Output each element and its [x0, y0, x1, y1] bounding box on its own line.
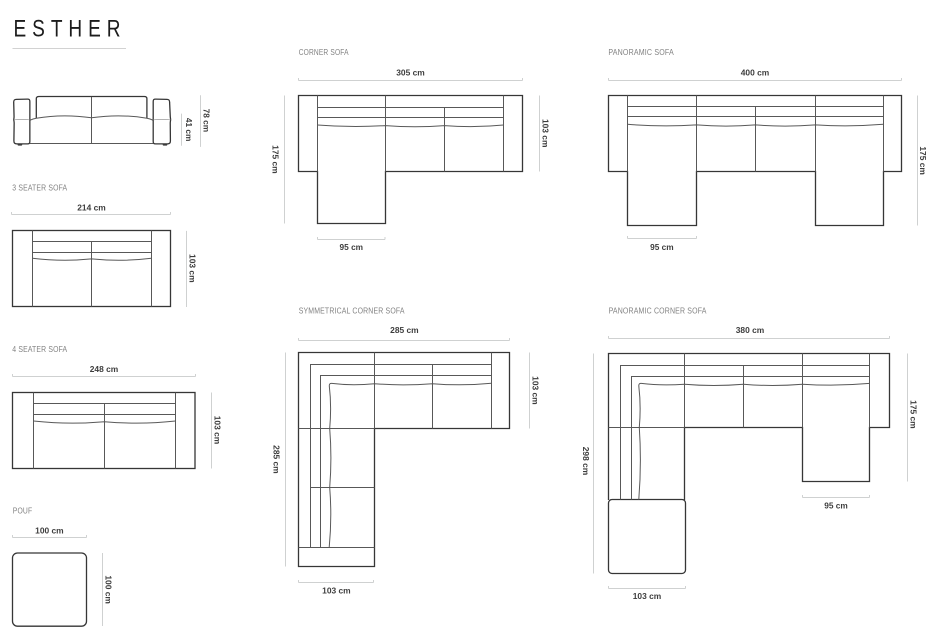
svg-text:78 cm: 78 cm	[201, 109, 211, 133]
svg-text:95 cm: 95 cm	[340, 242, 364, 252]
svg-text:PANORAMIC SOFA: PANORAMIC SOFA	[608, 47, 674, 57]
svg-text:285 cm: 285 cm	[390, 325, 419, 335]
svg-text:175 cm: 175 cm	[271, 145, 281, 174]
svg-text:100 cm: 100 cm	[35, 525, 64, 535]
svg-text:103 cm: 103 cm	[322, 586, 351, 596]
svg-text:103 cm: 103 cm	[531, 376, 541, 405]
svg-text:4 SEATER SOFA: 4 SEATER SOFA	[12, 344, 67, 354]
svg-text:CORNER SOFA: CORNER SOFA	[299, 47, 349, 57]
svg-text:ESTHER: ESTHER	[14, 16, 127, 43]
svg-text:103 cm: 103 cm	[540, 119, 550, 148]
svg-text:285 cm: 285 cm	[271, 445, 281, 474]
svg-text:SYMMETRICAL CORNER SOFA: SYMMETRICAL CORNER SOFA	[299, 306, 405, 316]
svg-text:298 cm: 298 cm	[581, 447, 591, 476]
svg-text:41 cm: 41 cm	[184, 118, 194, 142]
svg-text:175 cm: 175 cm	[909, 400, 919, 429]
svg-text:95 cm: 95 cm	[824, 500, 848, 510]
svg-text:175 cm: 175 cm	[918, 146, 928, 175]
svg-text:400 cm: 400 cm	[741, 68, 770, 78]
svg-text:95 cm: 95 cm	[650, 242, 674, 252]
svg-text:214 cm: 214 cm	[77, 202, 106, 212]
svg-text:248 cm: 248 cm	[90, 364, 119, 374]
svg-text:PANORAMIC CORNER SOFA: PANORAMIC CORNER SOFA	[609, 306, 707, 316]
svg-text:3 SEATER SOFA: 3 SEATER SOFA	[12, 182, 67, 192]
svg-text:380 cm: 380 cm	[736, 325, 765, 335]
svg-text:POUF: POUF	[13, 506, 33, 516]
svg-text:100 cm: 100 cm	[103, 575, 113, 604]
svg-text:103 cm: 103 cm	[187, 254, 197, 283]
svg-text:305 cm: 305 cm	[396, 68, 425, 78]
svg-text:103 cm: 103 cm	[213, 416, 223, 445]
svg-text:103 cm: 103 cm	[633, 591, 662, 601]
